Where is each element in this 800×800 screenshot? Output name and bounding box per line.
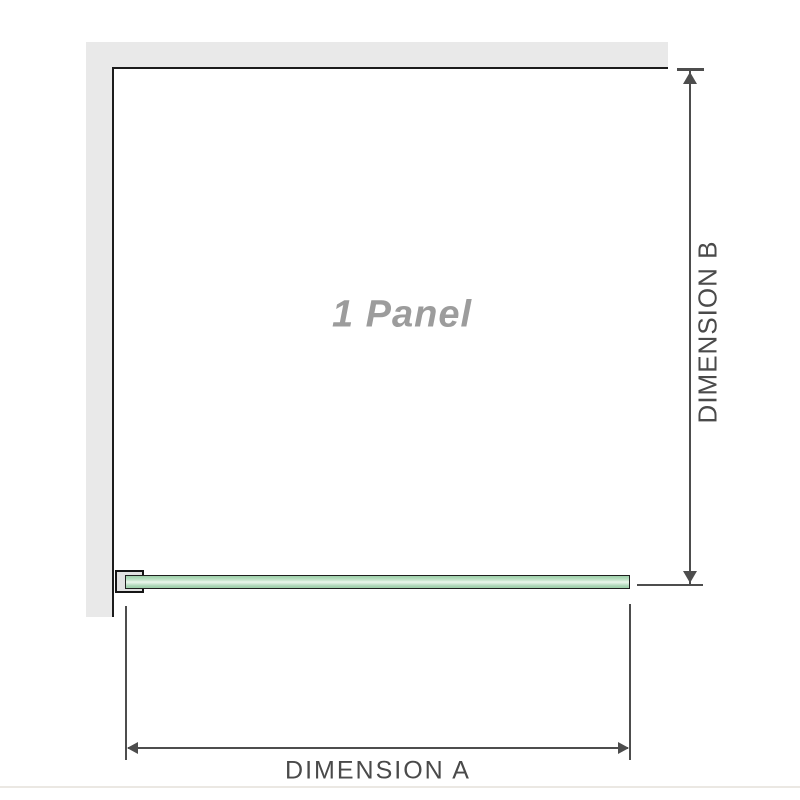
dimension-a-line (128, 747, 628, 750)
arrow-down-icon (683, 571, 697, 583)
shower-panel-diagram: 1 Panel DIMENSION B DIMENSION A (0, 0, 800, 800)
arrow-right-icon (618, 742, 629, 754)
dimension-a-label: DIMENSION A (285, 757, 471, 786)
glass-panel (125, 575, 630, 589)
bottom-rule (0, 786, 800, 788)
dimension-b-line (689, 71, 692, 584)
wall-inner-edge-left (112, 67, 114, 617)
dimension-a-extension-left (125, 606, 127, 760)
dimension-b-label: DIMENSION B (693, 241, 724, 424)
wall-inner-edge-top (112, 67, 668, 69)
panel-count-label: 1 Panel (332, 294, 472, 337)
arrow-left-icon (127, 742, 138, 754)
dimension-b-tick-bottom (637, 584, 703, 587)
wall-top-strip (86, 42, 668, 67)
arrow-up-icon (683, 72, 697, 84)
wall-left-strip (86, 42, 112, 617)
dimension-a-extension-right (629, 604, 631, 760)
